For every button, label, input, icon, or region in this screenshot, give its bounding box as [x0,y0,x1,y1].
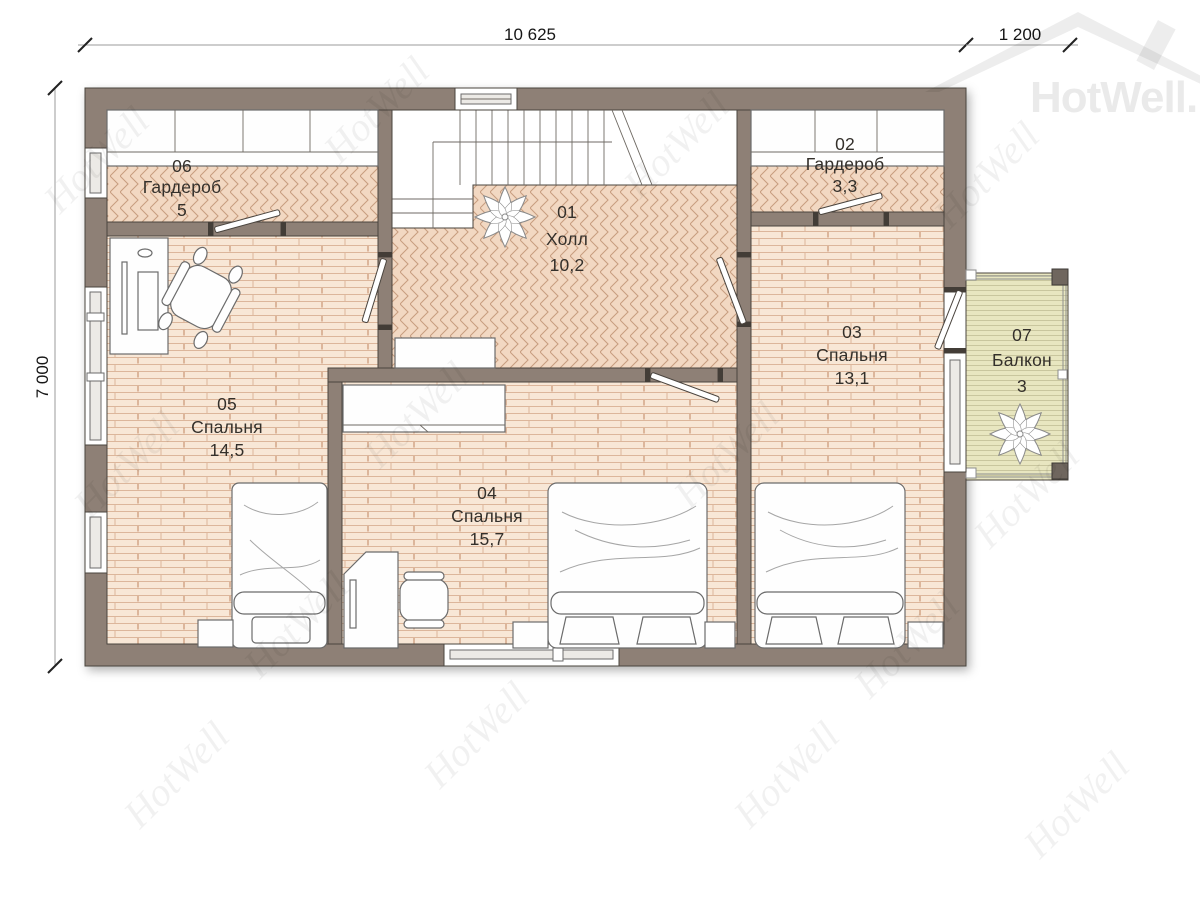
room-02-area: 3,3 [833,176,858,196]
monitor-icon [122,262,127,334]
monitor-icon [350,580,356,628]
mouse-icon [138,249,152,257]
dimension-top-width: 10 625 [78,25,974,52]
railing-post [966,270,976,280]
room-05-name: Спальня [191,417,263,437]
wall-hall-right [737,110,751,257]
wall-06-05 [107,222,213,236]
dim-total-width: 10 625 [504,25,556,44]
svg-text:HotWell: HotWell [1014,743,1138,867]
keyboard-icon [138,272,158,330]
room-07-area: 3 [1017,376,1027,396]
room-07-number: 07 [1012,325,1032,345]
room-06-number: 06 [172,156,192,176]
nightstand [705,622,735,648]
railing-post [1058,370,1067,379]
office-chair-room-04 [400,572,448,628]
room-04-area: 15,7 [470,529,505,549]
room-04-name: Спальня [451,506,523,526]
room-05-area: 14,5 [210,440,245,460]
room-03-number: 03 [842,322,862,342]
room-03-name: Спальня [816,345,888,365]
room-06-name: Гардероб [143,177,222,197]
pillow [560,617,619,644]
railing-post [1052,269,1068,285]
pillow [766,617,822,644]
room-01-area: 10,2 [550,255,585,275]
room-04-number: 04 [477,483,497,503]
wall-02-03 [751,212,818,226]
floor-plan-page: 10 625 1 200 7 000 [0,0,1200,917]
room-02-number: 02 [835,134,855,154]
logo-text: HotWell.KZ [1030,73,1200,122]
room-02-name: Гардероб [806,154,885,174]
room-03-area: 13,1 [835,368,870,388]
pillow [637,617,696,644]
bed-room-04 [548,483,707,648]
nightstand [198,620,233,647]
railing-post [966,468,976,478]
room-01-name: Холл [546,229,588,249]
svg-text:HotWell: HotWell [114,713,238,837]
bed-bolster [757,592,903,614]
bed-room-03 [755,483,905,648]
plant-icon [475,187,535,247]
wall-04-03 [737,322,751,644]
desk-room-05 [110,238,168,354]
nightstand [513,622,548,648]
room-06-area: 5 [177,200,187,220]
svg-text:HotWell: HotWell [414,673,538,797]
window-left-bedroom-large [85,287,107,445]
svg-text:HotWell: HotWell [724,713,848,837]
floor-plan-drawing: 10 625 1 200 7 000 [0,0,1200,917]
room-07-name: Балкон [992,350,1052,370]
bed-bolster [551,592,704,614]
room-05-number: 05 [217,394,237,414]
wall-06-05 [281,222,392,236]
room-01-number: 01 [557,202,577,222]
dim-total-height: 7 000 [33,356,52,399]
wall-hall-bottom [328,368,650,382]
window-top-stairs [455,88,517,110]
